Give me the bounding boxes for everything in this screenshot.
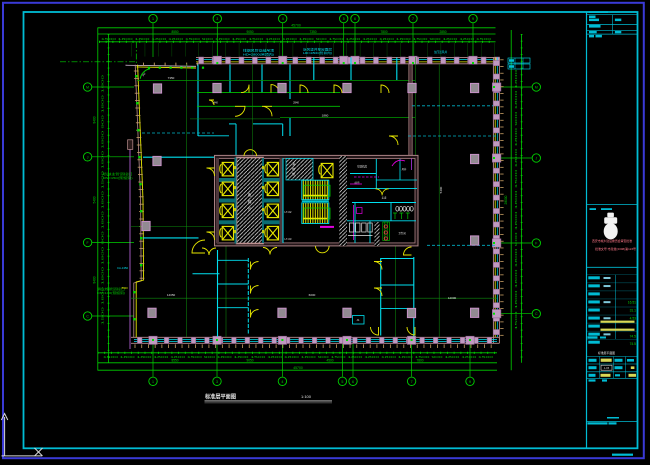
svg-text:厅: 厅: [248, 206, 252, 211]
svg-text:4.53: 4.53: [630, 316, 637, 320]
svg-text:卫生间: 卫生间: [398, 231, 406, 235]
svg-text:电: 电: [248, 192, 252, 197]
svg-text:7350: 7350: [309, 30, 316, 34]
svg-text:J1: J1: [356, 318, 360, 322]
svg-text:9050: 9050: [246, 358, 253, 362]
svg-text:HD=2800(吊顶内): HD=2800(吊顶内): [243, 53, 274, 57]
svg-text:J-15: J-15: [604, 366, 610, 370]
svg-text:2850: 2850: [439, 30, 446, 34]
svg-text:6: 6: [352, 380, 354, 384]
svg-text:74.5: 74.5: [630, 342, 637, 346]
svg-text:DN=150(预留洞): DN=150(预留洞): [103, 176, 133, 180]
svg-text:梯: 梯: [292, 171, 295, 176]
svg-text:7: 7: [412, 17, 414, 21]
svg-text:1500 1800 1800 1800 1800 1500: 1500 1800 1800 1800 1800 1500 900 1800 1…: [103, 356, 495, 359]
svg-text:7800: 7800: [416, 358, 423, 362]
svg-text:西安市城乡建设委员会审查批准: 西安市城乡建设委员会审查批准: [592, 238, 632, 243]
svg-text:梯: 梯: [248, 199, 252, 204]
svg-text:8400: 8400: [93, 116, 97, 123]
svg-text:空调机房: 空调机房: [357, 165, 368, 169]
svg-text:5: 5: [341, 380, 343, 384]
svg-text:标准层平面图: 标准层平面图: [598, 350, 615, 355]
svg-text:1500 1800 1800 1800 900 1800 1: 1500 1800 1800 1800 900 1800 1800 1500 1…: [515, 68, 518, 330]
svg-text:12000: 12000: [448, 296, 457, 300]
svg-text:45700: 45700: [293, 366, 303, 370]
svg-text:LT-03: LT-03: [285, 237, 292, 241]
svg-text:4500: 4500: [326, 358, 333, 362]
svg-text:J: J: [535, 157, 537, 161]
svg-text:16.51: 16.51: [628, 300, 636, 304]
svg-text:加压送风井: 加压送风井: [434, 50, 447, 54]
svg-text:8400: 8400: [93, 276, 97, 283]
svg-text:标准层平面图: 标准层平面图: [204, 393, 236, 401]
svg-text:9: 9: [472, 17, 474, 21]
svg-text:5: 5: [343, 17, 345, 21]
svg-text:7800: 7800: [380, 30, 387, 34]
svg-text:3: 3: [216, 380, 218, 384]
svg-text:F: F: [535, 242, 537, 246]
svg-text:4: 4: [282, 17, 284, 21]
svg-text:J: J: [87, 155, 89, 159]
svg-text:5400: 5400: [93, 196, 97, 203]
svg-text:HD=2800(管井内): HD=2800(管井内): [303, 51, 332, 55]
svg-text:LT-02: LT-02: [285, 210, 292, 214]
svg-text:6: 6: [354, 17, 356, 21]
svg-text:B500: B500: [122, 286, 129, 290]
svg-text:28000: 28000: [504, 195, 508, 204]
svg-text:防: 防: [292, 166, 295, 171]
svg-text:6000: 6000: [309, 293, 316, 297]
svg-text:31.1: 31.1: [630, 308, 637, 312]
svg-text:风井: 风井: [402, 167, 407, 171]
svg-text:DN=100(预留洞): DN=100(预留洞): [97, 291, 125, 295]
svg-text:1:100: 1:100: [301, 394, 312, 399]
svg-text:M: M: [86, 86, 89, 90]
svg-text:14350: 14350: [167, 293, 176, 297]
svg-text:3: 3: [216, 17, 218, 21]
svg-text:9050: 9050: [246, 30, 253, 34]
svg-text:CA-1350: CA-1350: [117, 266, 128, 270]
svg-text:批准文号:市建发(2008)第123号: 批准文号:市建发(2008)第123号: [595, 246, 636, 251]
svg-text:9: 9: [469, 380, 471, 384]
svg-text:8550: 8550: [171, 30, 178, 34]
svg-text:F: F: [87, 241, 89, 245]
svg-text:7: 7: [411, 380, 413, 384]
svg-text:M: M: [535, 86, 538, 90]
svg-text:2940: 2940: [293, 101, 299, 105]
svg-text:7350: 7350: [168, 76, 175, 80]
svg-text:消: 消: [292, 161, 295, 166]
svg-text:45700: 45700: [291, 24, 301, 28]
svg-text:走道: 走道: [382, 196, 387, 200]
svg-text:5400: 5400: [439, 186, 443, 193]
svg-text:1: 1: [152, 380, 154, 384]
svg-text:1: 1: [152, 17, 154, 21]
svg-text:74.5: 74.5: [630, 334, 637, 338]
svg-text:8550: 8550: [171, 358, 178, 362]
svg-text:4: 4: [281, 380, 283, 384]
svg-text:1860: 1860: [322, 113, 329, 117]
